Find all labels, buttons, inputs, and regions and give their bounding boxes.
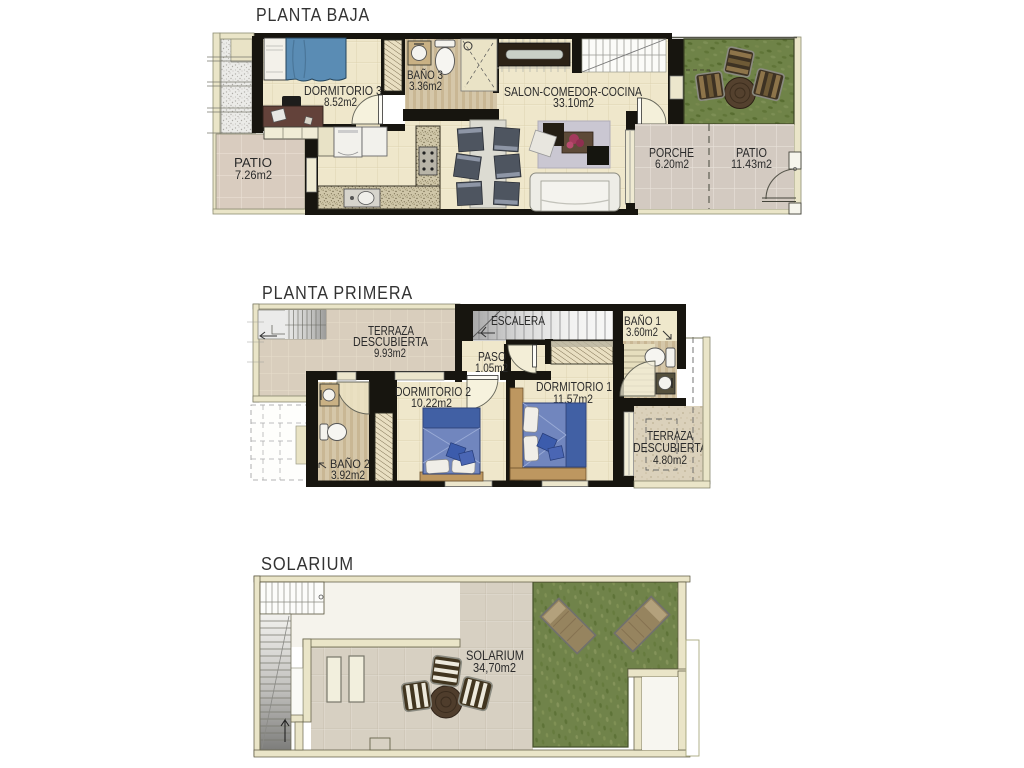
svg-text:3.92m2: 3.92m2 xyxy=(331,468,365,482)
svg-text:33.10m2: 33.10m2 xyxy=(553,96,594,110)
svg-text:9.93m2: 9.93m2 xyxy=(374,346,406,360)
svg-text:PLANTA BAJA: PLANTA BAJA xyxy=(256,4,370,25)
svg-text:4.80m2: 4.80m2 xyxy=(653,453,687,467)
svg-text:3.36m2: 3.36m2 xyxy=(409,79,442,93)
svg-text:11.43m2: 11.43m2 xyxy=(731,157,772,171)
svg-text:PLANTA PRIMERA: PLANTA PRIMERA xyxy=(262,282,413,303)
svg-text:ESCALERA: ESCALERA xyxy=(491,314,546,328)
svg-text:7.26m2: 7.26m2 xyxy=(235,168,272,182)
svg-text:3.60m2: 3.60m2 xyxy=(626,325,658,339)
svg-text:8.52m2: 8.52m2 xyxy=(324,95,357,109)
svg-text:1.05m2: 1.05m2 xyxy=(475,361,508,375)
svg-text:SOLARIUM: SOLARIUM xyxy=(261,553,354,574)
svg-text:6.20m2: 6.20m2 xyxy=(655,157,689,171)
svg-text:34,70m2: 34,70m2 xyxy=(473,660,516,675)
